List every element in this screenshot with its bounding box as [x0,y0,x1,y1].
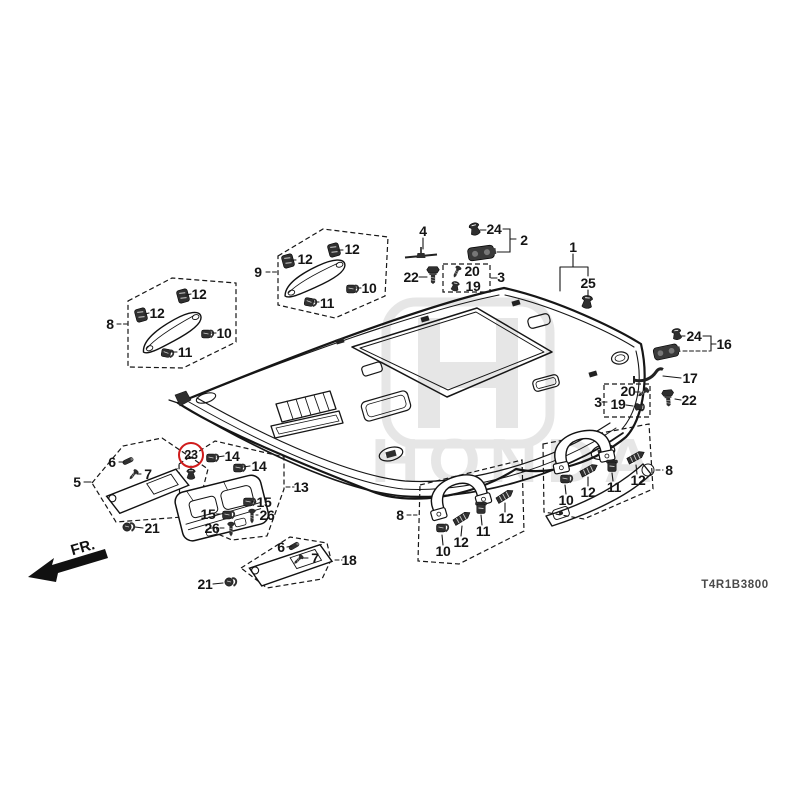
bolt-part-22-right [661,390,674,407]
clip-part-25 [581,295,592,309]
clip-part-24-right [671,328,682,341]
fr-direction-arrow: FR. [28,536,108,582]
hook-part-21-left [123,523,134,531]
sensor-part-2 [467,244,497,261]
bolt-part-22-top [427,267,440,284]
box-clip-3-top [443,264,490,292]
clip-part-20-top [451,265,461,279]
diagram-code: T4R1B3800 [701,579,768,591]
clip-part-4 [405,247,437,258]
clip-part-24-top [468,222,481,236]
hook-part-21-bottom [225,578,236,586]
exploded-parts-drawing: HONDA [0,0,800,800]
sensor-part-16 [653,343,682,361]
clip-part-19-top [451,281,460,292]
parts-diagram-page: HONDA [0,0,800,800]
